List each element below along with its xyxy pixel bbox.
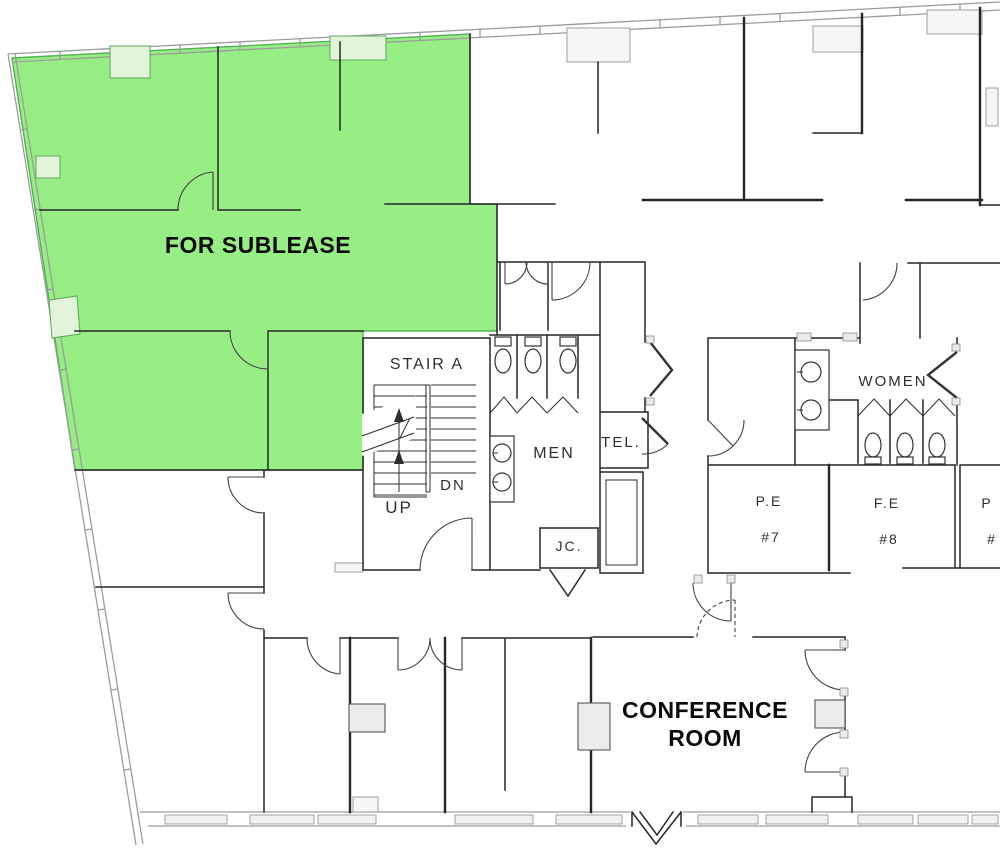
wall-fixture — [986, 88, 998, 126]
pilaster — [330, 36, 386, 60]
label-pe9-number: # — [987, 531, 997, 547]
window-panel — [698, 815, 758, 824]
label-fe8-number: #8 — [879, 531, 899, 547]
label-stair-a: STAIR A — [390, 356, 464, 373]
toilet-icon — [495, 337, 576, 373]
sink-icon — [490, 436, 514, 502]
column — [578, 703, 610, 750]
sink-icon — [795, 350, 829, 430]
stall-doors — [490, 397, 578, 413]
corridor-door-leaves — [650, 342, 672, 396]
pilaster — [927, 10, 982, 34]
women-door-leaves — [928, 352, 957, 398]
column — [815, 700, 845, 728]
label-women: WOMEN — [858, 373, 927, 390]
floor-plan: FOR SUBLEASE STAIR A UP DN MEN TEL. JC. … — [0, 0, 1000, 848]
wall-stub — [353, 797, 378, 812]
shaft — [606, 480, 637, 565]
stall-doors — [858, 399, 955, 416]
window-panel — [766, 815, 828, 824]
label-conference-line2: ROOM — [668, 725, 742, 751]
window-panel — [918, 815, 968, 824]
window-panel — [250, 815, 314, 824]
label-conference-line1: CONFERENCE — [622, 697, 788, 723]
tel-door-leaf — [642, 418, 668, 444]
entry-vestibule — [632, 812, 681, 844]
window-panel — [165, 815, 227, 824]
closet — [567, 28, 630, 62]
label-up: UP — [385, 498, 413, 517]
stair-rail — [426, 385, 430, 492]
label-jc: JC. — [556, 538, 583, 554]
label-pe7-number: #7 — [761, 529, 781, 545]
jc-door-symbol — [550, 570, 585, 596]
floor-plan-drawing: FOR SUBLEASE STAIR A UP DN MEN TEL. JC. … — [0, 0, 1000, 848]
window-panel — [556, 815, 622, 824]
label-men: MEN — [533, 445, 575, 462]
window-panel — [858, 815, 913, 824]
label-tel: TEL. — [601, 434, 641, 451]
window-panel — [318, 815, 376, 824]
window-panel — [972, 815, 998, 824]
label-pe7-name: P.E — [756, 493, 783, 509]
column — [349, 704, 385, 732]
pilaster — [36, 156, 60, 178]
pilaster — [110, 46, 150, 78]
wall-stub — [335, 563, 363, 572]
pilaster — [813, 26, 863, 52]
label-pe9-name: P — [981, 495, 992, 511]
label-dn: DN — [440, 477, 466, 494]
label-for-sublease: FOR SUBLEASE — [165, 232, 351, 258]
toilet-icon — [865, 433, 945, 464]
label-fe8-name: F.E — [874, 495, 900, 511]
window-panel — [455, 815, 533, 824]
